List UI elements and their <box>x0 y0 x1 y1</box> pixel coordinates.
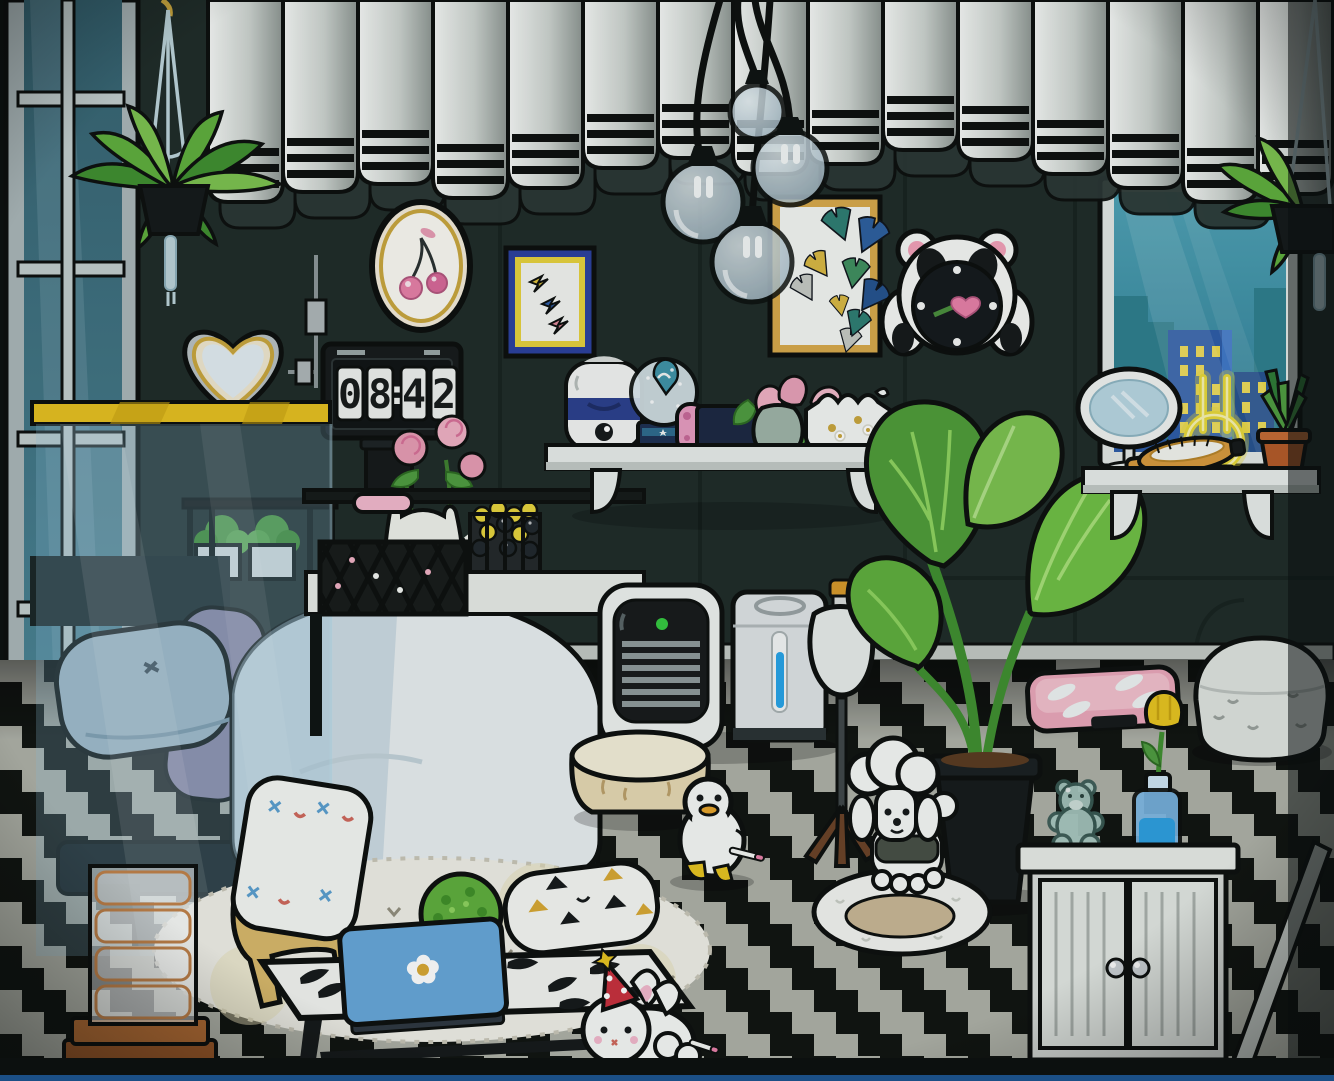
game-room: 0 8 : 4 2 <box>0 0 1334 1081</box>
